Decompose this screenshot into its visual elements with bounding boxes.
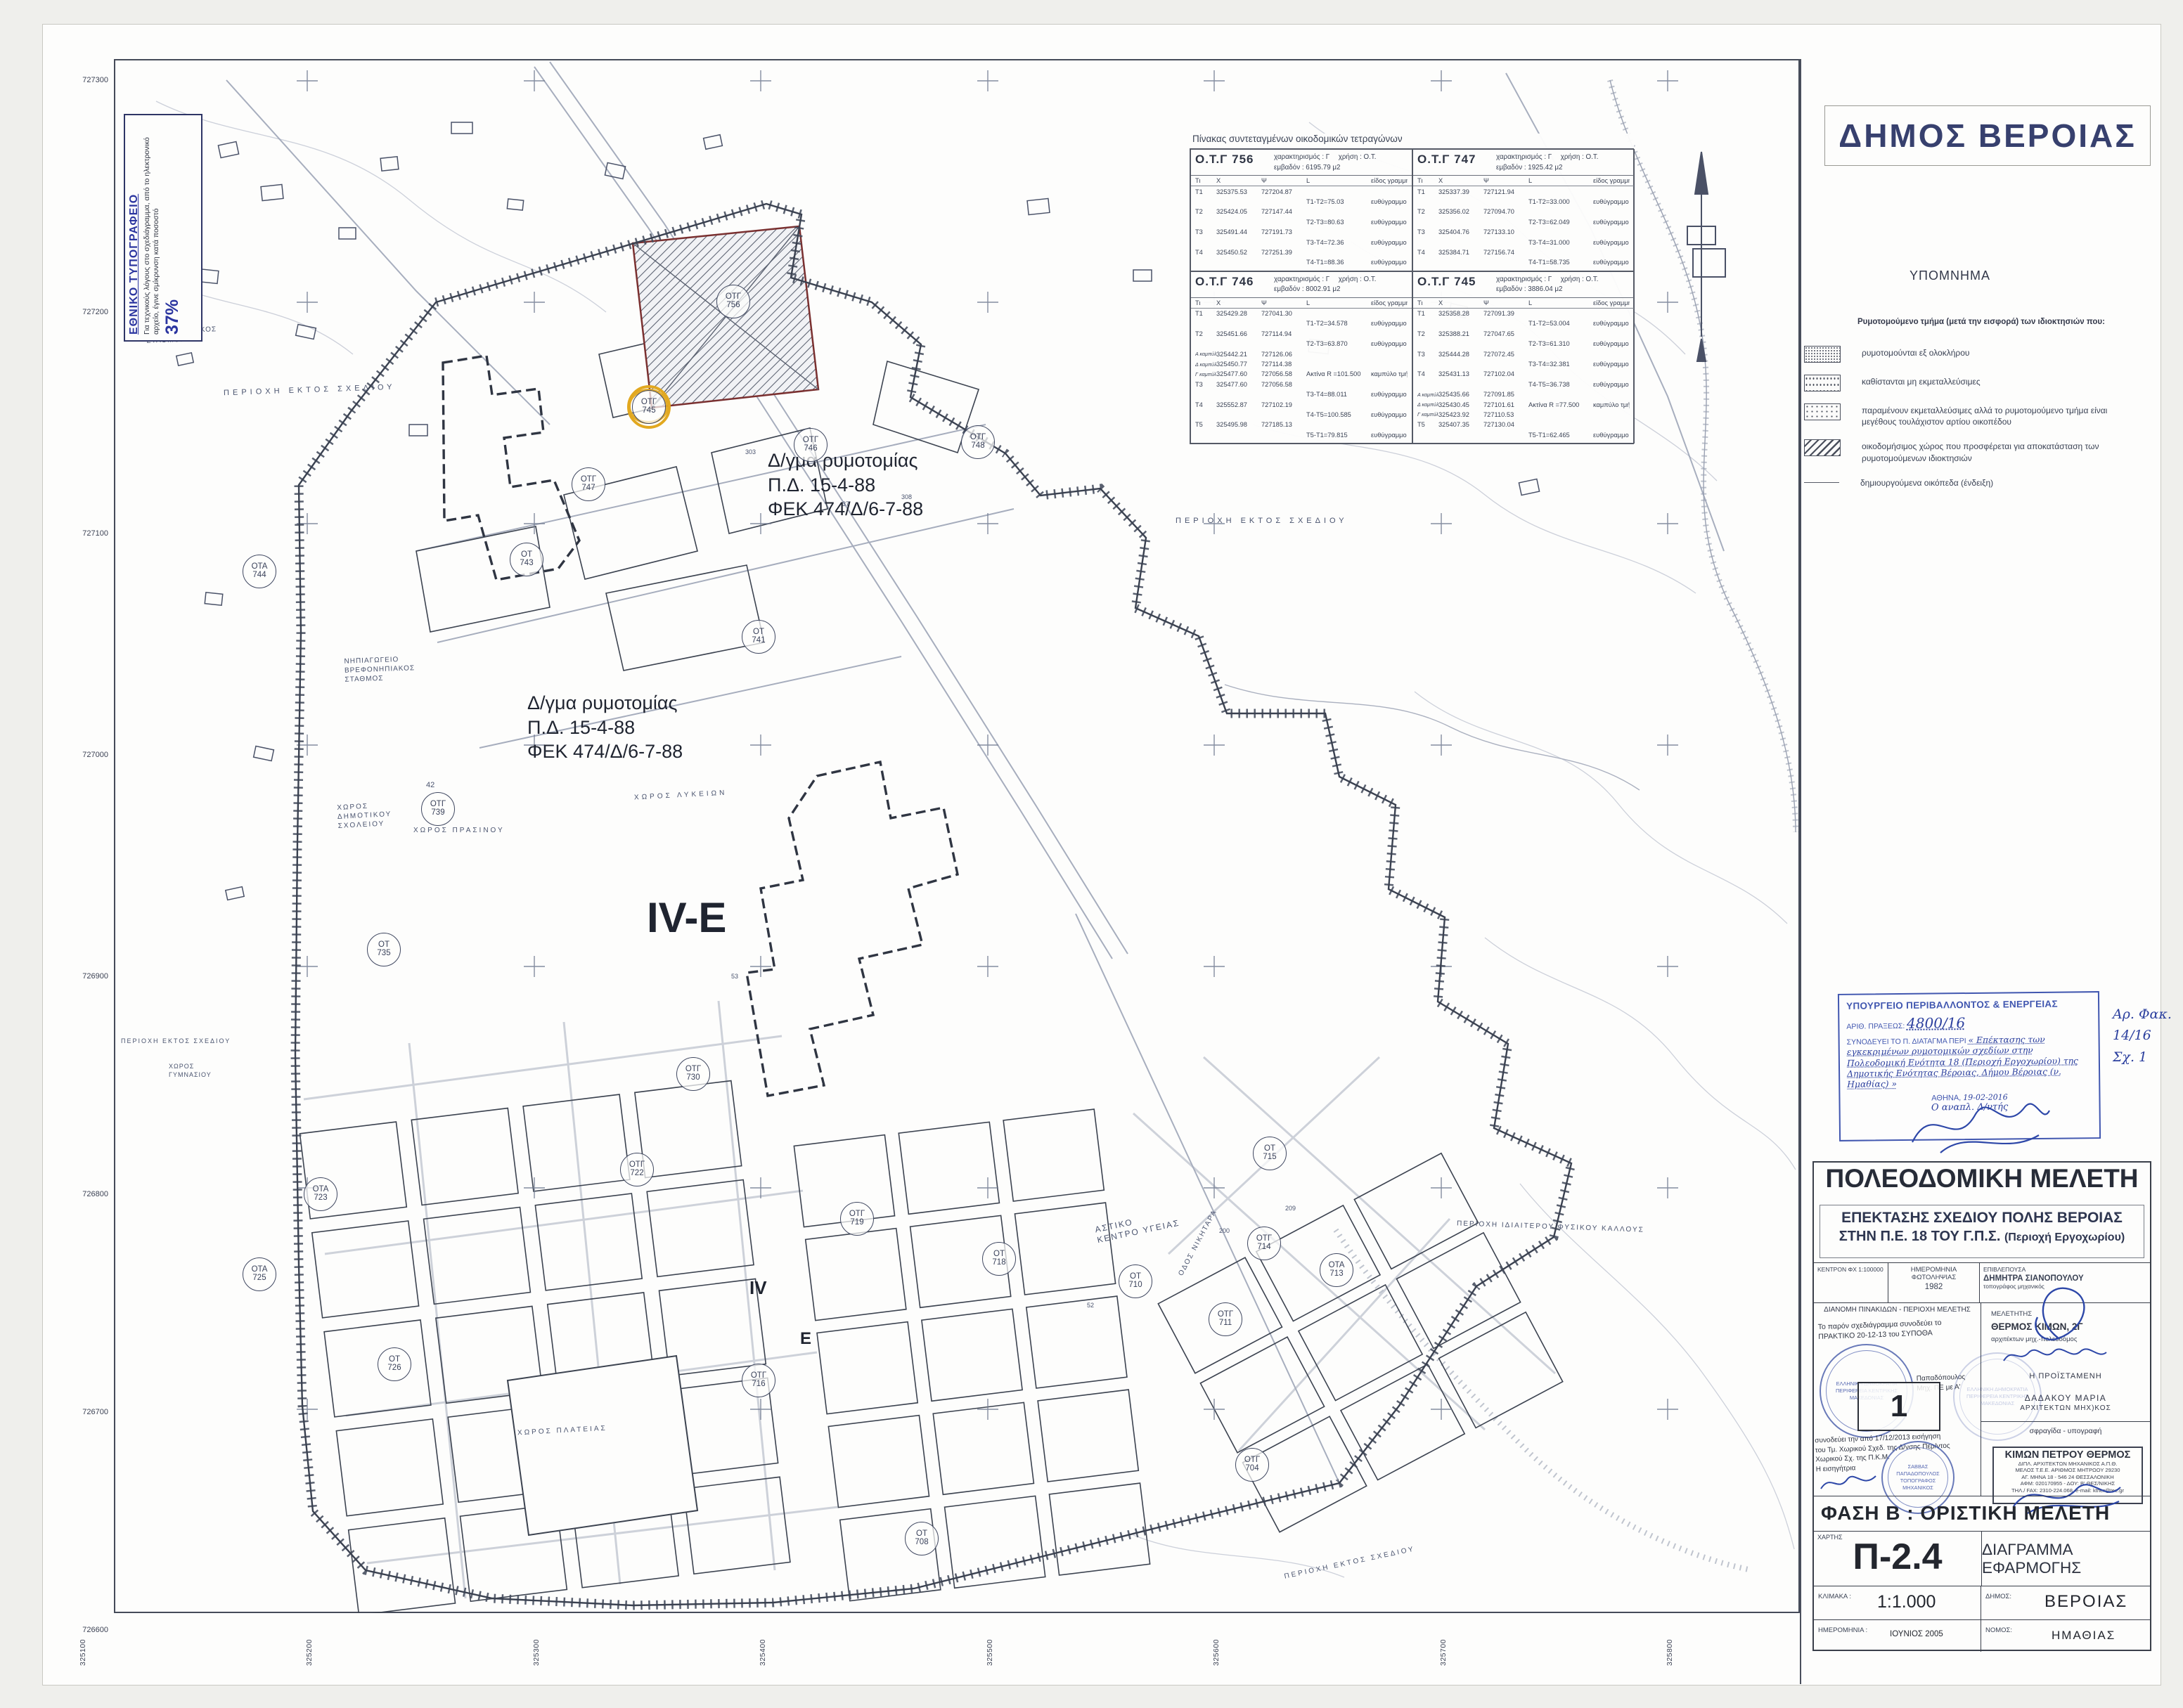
block-number: 710 bbox=[1128, 1281, 1142, 1290]
block-characterization: χαρακτηρισμός : Γ χρήση : Ο.Τ. bbox=[1496, 153, 1598, 163]
coordinate-row: Δ καμπύλης325430.45727101.61Ακτίνα R =77… bbox=[1413, 399, 1634, 409]
map-label-line: 53 bbox=[731, 973, 738, 981]
subtitle2-text: ΣΤΗΝ Π.Ε. 18 ΤΟΥ Γ.Π.Σ. bbox=[1839, 1229, 2001, 1244]
cell: T4-T1=58.735 bbox=[1528, 259, 1593, 266]
map-label-line: 308 bbox=[901, 493, 912, 502]
architect-stamp-line: ΚΙΜΩΝ ΠΕΤΡΟΥ ΘΕΡΜΟΣ bbox=[1994, 1449, 2142, 1461]
cell: ευθύγραμμο τμήμα bbox=[1593, 381, 1630, 388]
map-label: 37 bbox=[842, 500, 849, 509]
cell: 727147.44 bbox=[1261, 208, 1306, 215]
block-area: εμβαδόν : 3886.04 μ2 bbox=[1496, 285, 1598, 295]
cell: T5-T1=79.815 bbox=[1306, 432, 1371, 439]
map-label-line: Δ/γμα ρυμοτομίας bbox=[768, 448, 923, 473]
block-circle-715: ΟΤ715 bbox=[1253, 1137, 1287, 1170]
cell: T3-T4=32.381 bbox=[1528, 361, 1593, 368]
coordinate-row: T2325356.02727094.70 bbox=[1413, 207, 1634, 216]
cell: T3-T4=31.000 bbox=[1528, 239, 1593, 246]
block-number: 744 bbox=[252, 571, 266, 580]
scale-label: ΚΛΙΜΑΚΑ : bbox=[1818, 1593, 1851, 1600]
repro-percent: 37% bbox=[162, 121, 183, 335]
cell: T2 bbox=[1417, 330, 1438, 337]
legend-item-label: ρυμοτομούνται εξ ολοκλήρου bbox=[1862, 346, 1969, 358]
coordinate-row: T1-T2=33.000ευθύγραμμο τμήμα bbox=[1413, 197, 1634, 207]
cell: ευθύγραμμο τμήμα bbox=[1593, 320, 1630, 327]
block-characterization: χαρακτηρισμός : Γ χρήση : Ο.Τ. bbox=[1274, 153, 1376, 163]
praxis-row: ΑΡΙΘ. ΠΡΑΞΕΩΣ: 4800/16 bbox=[1846, 1013, 2091, 1033]
block-circle-723: ΟΤΑ723 bbox=[304, 1177, 337, 1211]
date-value: ΙΟΥΝΙΟΣ 2005 bbox=[1890, 1630, 1943, 1638]
cell: T3 bbox=[1417, 351, 1438, 358]
column-header: Ψ bbox=[1261, 299, 1306, 306]
cell: Γ καμπύλης bbox=[1195, 371, 1216, 377]
cell: T2 bbox=[1417, 208, 1438, 215]
photo-date-value: 1982 bbox=[1892, 1283, 1976, 1291]
cell: 727091.85 bbox=[1483, 391, 1528, 398]
cell: 727072.45 bbox=[1483, 351, 1528, 358]
cell: 325388.21 bbox=[1438, 330, 1483, 337]
column-header: L bbox=[1306, 299, 1371, 306]
cell: T2 bbox=[1195, 208, 1216, 215]
cell: 325435.66 bbox=[1438, 391, 1483, 398]
coordinate-row: T2-T3=62.049ευθύγραμμο τμήμα bbox=[1413, 217, 1634, 227]
block-circle-714: ΟΤΓ714 bbox=[1247, 1227, 1281, 1260]
cell: Ακτίνα R =101.500 bbox=[1306, 370, 1371, 377]
bottom-axis-label: 325600 bbox=[1212, 1628, 1221, 1666]
cell: T5 bbox=[1417, 421, 1438, 428]
file-ref-line1: Αρ. Φακ. 14/16 bbox=[2113, 1004, 2183, 1047]
left-axis-label: 726700 bbox=[67, 1408, 108, 1416]
nomos-value: ΗΜΑΘΙΑΣ bbox=[2052, 1629, 2116, 1643]
block-number: 730 bbox=[686, 1074, 700, 1082]
column-header: είδος γραμμής bbox=[1371, 299, 1408, 306]
block-number: 746 bbox=[804, 445, 817, 453]
block-circle-710: ΟΤ710 bbox=[1119, 1264, 1152, 1298]
cell: ευθύγραμμο τμήμα bbox=[1593, 219, 1630, 226]
cell: 325450.52 bbox=[1216, 249, 1261, 256]
bottom-axis-label: 325500 bbox=[986, 1628, 994, 1666]
subtitle2-note: (Περιοχή Εργοχωρίου) bbox=[2004, 1231, 2125, 1243]
cell: Α καμπύλης bbox=[1417, 392, 1438, 398]
map-code-row: ΧΑΡΤΗΣ Π-2.4 ΔΙΑΓΡΑΜΜΑ ΕΦΑΡΜΟΓΗΣ bbox=[1814, 1531, 2150, 1586]
bottom-axis-label: 325200 bbox=[305, 1628, 314, 1666]
column-headers: ΤιΧΨLείδος γραμμής bbox=[1191, 298, 1412, 309]
municipality-cell: ΔΗΜΟΣ: ΒΕΡΟΙΑΣ bbox=[1981, 1586, 2150, 1620]
cell: T1 bbox=[1417, 188, 1438, 195]
cell: 325404.76 bbox=[1438, 228, 1483, 235]
faint-stamp-text: ΕΛΛΗΝΙΚΗ ΔΗΜΟΚΡΑΤΙΑ ΠΕΡΙΦΕΡΕΙΑ ΚΕΝΤΡΙΚΗΣ… bbox=[1962, 1386, 2033, 1407]
info-row: ΚΕΝΤΡΟΝ ΦΧ 1:100000 ΗΜΕΡΟΜΗΝΙΑ ΦΩΤΟΛΗΨΙΑ… bbox=[1814, 1262, 2150, 1303]
coordinates-table: Πίνακας συντεταγμένων οικοδομικών τετραγ… bbox=[1190, 134, 1634, 444]
coord-block-header: Ο.Τ.Γ 745χαρακτηρισμός : Γ χρήση : Ο.Τ.ε… bbox=[1413, 272, 1634, 298]
coord-block: Ο.Τ.Γ 745χαρακτηρισμός : Γ χρήση : Ο.Τ.ε… bbox=[1412, 271, 1635, 444]
center-cell: ΚΕΝΤΡΟΝ ΦΧ 1:100000 bbox=[1814, 1263, 1888, 1302]
cell: 325430.45 bbox=[1438, 401, 1483, 408]
map-label: Δ/γμα ρυμοτομίαςΠ.Δ. 15-4-88ΦΕΚ 474/Δ/6-… bbox=[527, 691, 683, 764]
coordinate-row: T2325424.05727147.44 bbox=[1191, 207, 1412, 216]
map-label-line: ΦΕΚ 474/Δ/6-7-88 bbox=[527, 739, 683, 764]
reproduction-note-box: ΕΘΝΙΚΟ ΤΥΠΟΓΡΑΦΕΙΟ Για τεχνικούς λόγους … bbox=[124, 114, 202, 342]
cell: T3 bbox=[1195, 228, 1216, 235]
column-header: Ψ bbox=[1483, 177, 1528, 184]
map-label-line: 52 bbox=[1087, 1302, 1094, 1310]
cell: T1 bbox=[1417, 310, 1438, 317]
map-label: Ε bbox=[800, 1328, 811, 1350]
cell: T1-T2=33.000 bbox=[1528, 198, 1593, 205]
left-axis-label: 727000 bbox=[67, 751, 108, 759]
stamp-date: 19-02-2016 bbox=[1963, 1092, 2008, 1102]
coordinate-row: T4-T1=88.36ευθύγραμμο τμήμα bbox=[1191, 257, 1412, 267]
cell: 325451.66 bbox=[1216, 330, 1261, 337]
map-label: 53 bbox=[731, 973, 738, 981]
study-subtitle-2: ΣΤΗΝ Π.Ε. 18 ΤΟΥ Γ.Π.Σ. (Περιοχή Εργοχωρ… bbox=[1820, 1229, 2144, 1245]
block-area: εμβαδόν : 8002.91 μ2 bbox=[1274, 285, 1376, 295]
coord-block-header: Ο.Τ.Γ 747χαρακτηρισμός : Γ χρήση : Ο.Τ.ε… bbox=[1413, 150, 1634, 176]
map-label-line: ΓΥΜΝΑΣΙΟΥ bbox=[169, 1071, 212, 1080]
coordinate-row: T1-T2=75.03ευθύγραμμο τμήμα bbox=[1191, 197, 1412, 207]
map-label-line: Π.Δ. 15-4-88 bbox=[768, 473, 923, 498]
cell: 727110.53 bbox=[1483, 411, 1528, 418]
cell: Ακτίνα R =77.500 bbox=[1528, 401, 1593, 408]
supervisor-label: ΕΠΙΒΛΕΠΟΥΣΑ bbox=[1983, 1266, 2026, 1273]
architect-stamp-line: ΑΦΜ: 020170955 - ΔΟΥ: Β' ΘΕΣ/ΝΙΚΗΣ bbox=[1994, 1480, 2142, 1487]
praxis-label: ΑΡΙΘ. ΠΡΑΞΕΩΣ: bbox=[1846, 1022, 1905, 1031]
left-axis-label: 727300 bbox=[67, 76, 108, 84]
block-number: 756 bbox=[726, 302, 740, 310]
map-label-line: ΧΩΡΟΣ ΠΡΑΣΙΝΟΥ bbox=[413, 827, 505, 836]
block-id: Ο.Τ.Γ 747 bbox=[1417, 153, 1496, 167]
architect-stamp-line: ΑΓ. ΜΗΝΑ 18 - 546 24 ΘΕΣΣΑΛΟΝΙΚΗ bbox=[1994, 1474, 2142, 1480]
coordinate-row: T5-T1=62.465ευθύγραμμο τμήμα bbox=[1413, 430, 1634, 440]
legend-item: ρυμοτομούνται εξ ολοκλήρου bbox=[1804, 346, 2153, 363]
cell: ευθύγραμμο τμήμα bbox=[1371, 239, 1408, 246]
block-circle-704: ΟΤΓ704 bbox=[1235, 1448, 1269, 1482]
scale-row: ΚΛΙΜΑΚΑ : 1:1.000 ΔΗΜΟΣ: ΒΕΡΟΙΑΣ bbox=[1814, 1586, 2150, 1620]
cell: 727133.10 bbox=[1483, 228, 1528, 235]
coordinate-row: T2-T3=63.870ευθύγραμμο τμήμα bbox=[1191, 339, 1412, 349]
coordinate-row: T1325375.53727204.87 bbox=[1191, 186, 1412, 196]
cell: 727121.94 bbox=[1483, 188, 1528, 195]
column-header: Ψ bbox=[1483, 299, 1528, 306]
cell: T4-T5=36.738 bbox=[1528, 381, 1593, 388]
date-label: ΗΜΕΡΟΜΗΝΙΑ : bbox=[1818, 1626, 1867, 1634]
block-circle-756: ΟΤΓ756 bbox=[716, 285, 750, 318]
block-characterization: χαρακτηρισμός : Γ χρήση : Ο.Τ. bbox=[1496, 275, 1598, 285]
block-number: 723 bbox=[314, 1194, 327, 1203]
coordinate-row: T4325552.87727102.19 bbox=[1191, 399, 1412, 409]
column-header: Χ bbox=[1438, 299, 1483, 306]
cell: T5-T1=62.465 bbox=[1528, 432, 1593, 439]
cell: ευθύγραμμο τμήμα bbox=[1593, 340, 1630, 347]
bottom-axis-label: 325800 bbox=[1666, 1628, 1674, 1666]
map-title: ΔΙΑΓΡΑΜΜΑ ΕΦΑΡΜΟΓΗΣ bbox=[1982, 1532, 2150, 1586]
map-code: Π-2.4 bbox=[1814, 1536, 1981, 1578]
column-header: L bbox=[1306, 177, 1371, 184]
block-number: 745 bbox=[642, 407, 655, 415]
cell: T3 bbox=[1417, 228, 1438, 235]
cell: 727047.65 bbox=[1483, 330, 1528, 337]
study-subtitle-1: ΕΠΕΚΤΑΣΗΣ ΣΧΕΔΙΟΥ ΠΟΛΗΣ ΒΕΡΟΙΑΣ bbox=[1820, 1210, 2144, 1227]
hatch-swatch-icon bbox=[1804, 439, 1841, 456]
block-circle-716: ΟΤΓ716 bbox=[742, 1364, 775, 1397]
column-header: Τι bbox=[1417, 177, 1438, 184]
decree-row: ΣΥΝΟΔΕΥΕΙ ΤΟ Π. ΔΙΑΤΑΓΜΑ ΠΕΡΙ « Επέκταση… bbox=[1847, 1034, 2092, 1090]
cell: 727251.39 bbox=[1261, 249, 1306, 256]
cell: 325552.87 bbox=[1216, 401, 1261, 408]
date-cell: ΗΜΕΡΟΜΗΝΙΑ : ΙΟΥΝΙΟΣ 2005 bbox=[1814, 1620, 1981, 1652]
block-circle-718: ΟΤ718 bbox=[982, 1242, 1016, 1276]
architect-stamp-line: ΜΕΛΟΣ Τ.Ε.Ε. ΑΡΙΘΜΟΣ ΜΗΤΡΩΟΥ 29230 bbox=[1994, 1467, 2142, 1473]
map-label: IV-E bbox=[647, 891, 726, 945]
coordinate-row: T2325451.66727114.94 bbox=[1191, 329, 1412, 339]
decree-label: ΣΥΝΟΔΕΥΕΙ ΤΟ Π. ΔΙΑΤΑΓΜΑ ΠΕΡΙ bbox=[1847, 1037, 1966, 1047]
map-label-line: 37 bbox=[842, 500, 849, 509]
plaza-block bbox=[508, 1356, 697, 1535]
legend-item-label: οικοδομήσιμος χώρος που προσφέρεται για … bbox=[1862, 439, 2136, 463]
coordinate-row: T3-T4=32.381ευθύγραμμο τμήμα bbox=[1413, 359, 1634, 369]
phase-label: ΦΑΣΗ Β : ΟΡΙΣΤΙΚΗ ΜΕΛΕΤΗ bbox=[1814, 1496, 2150, 1531]
consultant-label: ΜΕΛΕΤΗΤΗΣ bbox=[1991, 1310, 2032, 1318]
left-axis-label: 727100 bbox=[67, 529, 108, 538]
cell: 325495.98 bbox=[1216, 421, 1261, 428]
coordinate-row: T4325431.13727102.04 bbox=[1413, 369, 1634, 379]
coordinate-row: T2-T3=61.310ευθύγραμμο τμήμα bbox=[1413, 339, 1634, 349]
cell: T2-T3=62.049 bbox=[1528, 219, 1593, 226]
panel-divider bbox=[1800, 59, 1801, 1684]
dimos-label: ΔΗΜΟΣ: bbox=[1985, 1593, 2011, 1600]
coordinates-table-title: Πίνακας συντεταγμένων οικοδομικών τετραγ… bbox=[1192, 134, 1634, 144]
cell: 727102.04 bbox=[1483, 370, 1528, 377]
cell: 325423.92 bbox=[1438, 411, 1483, 418]
block-meta: χαρακτηρισμός : Γ χρήση : Ο.Τ.εμβαδόν : … bbox=[1496, 275, 1598, 295]
coordinate-row: T1325337.39727121.94 bbox=[1413, 186, 1634, 196]
map-label-line: 209 bbox=[1285, 1205, 1296, 1213]
block-circle-747: ΟΤΓ747 bbox=[572, 467, 605, 501]
coordinate-row: Α καμπύλης325442.21727126.06 bbox=[1191, 349, 1412, 358]
cell: T5 bbox=[1195, 421, 1216, 428]
cell: 325431.13 bbox=[1438, 370, 1483, 377]
cell: 727056.58 bbox=[1261, 381, 1306, 388]
coordinate-row: T3325444.28727072.45 bbox=[1413, 349, 1634, 358]
cell: 325407.35 bbox=[1438, 421, 1483, 428]
cell: ευθύγραμμο τμήμα bbox=[1371, 259, 1408, 266]
cell: 325442.21 bbox=[1216, 351, 1261, 358]
coordinate-row: T4-T5=100.585ευθύγραμμο τμήμα bbox=[1191, 410, 1412, 420]
cell: 325337.39 bbox=[1438, 188, 1483, 195]
map-label: ΧΩΡΟΣΔΗΜΟΤΙΚΟΥΣΧΟΛΕΙΟΥ bbox=[337, 801, 392, 831]
cell: 325384.71 bbox=[1438, 249, 1483, 256]
map-label-line: IV bbox=[749, 1276, 767, 1300]
map-label-line: Ε bbox=[800, 1328, 811, 1350]
coordinate-row: T1-T2=53.004ευθύγραμμο τμήμα bbox=[1413, 318, 1634, 328]
cell: T2-T3=61.310 bbox=[1528, 340, 1593, 347]
coord-block: Ο.Τ.Γ 747χαρακτηρισμός : Γ χρήση : Ο.Τ.ε… bbox=[1412, 149, 1635, 271]
faint-round-stamp: ΕΛΛΗΝΙΚΗ ΔΗΜΟΚΡΑΤΙΑ ΠΕΡΙΦΕΡΕΙΑ ΚΕΝΤΡΙΚΗΣ… bbox=[1953, 1352, 2042, 1441]
map-label-line: ΧΩΡΟΣ bbox=[169, 1063, 212, 1071]
consultant-name: ΘΕΡΜΟΣ ΚΙΜΩΝ, 2Γ bbox=[1991, 1321, 2083, 1332]
block-number: 704 bbox=[1245, 1465, 1258, 1473]
block-number: 741 bbox=[752, 637, 765, 645]
cell: Γ καμπύλης bbox=[1417, 411, 1438, 418]
legend-item: παραμένουν εκμεταλλεύσιμες αλλά το ρυμοτ… bbox=[1804, 403, 2153, 427]
coord-block-header: Ο.Τ.Γ 756χαρακτηρισμός : Γ χρήση : Ο.Τ.ε… bbox=[1191, 150, 1412, 176]
block-meta: χαρακτηρισμός : Γ χρήση : Ο.Τ.εμβαδόν : … bbox=[1496, 153, 1598, 173]
map-label-line: 42 bbox=[426, 780, 434, 790]
architect-stamp-line: ΤΗΛ./ FAX: 2310-224.068, e-mail: kther@t… bbox=[1994, 1487, 2142, 1494]
cell: 325477.60 bbox=[1216, 370, 1261, 377]
map-label: 303 bbox=[745, 448, 756, 457]
cell: ευθύγραμμο τμήμα bbox=[1593, 259, 1630, 266]
coordinate-row: T5325407.35727130.04 bbox=[1413, 420, 1634, 429]
coordinate-row: T4-T5=36.738ευθύγραμμο τμήμα bbox=[1413, 380, 1634, 389]
map-label: 308 bbox=[901, 493, 912, 502]
cell: T4 bbox=[1195, 249, 1216, 256]
column-header: L bbox=[1528, 299, 1593, 306]
column-header: είδος γραμμής bbox=[1371, 177, 1408, 184]
cell: καμπύλο τμήμα bbox=[1371, 370, 1408, 377]
cell: ευθύγραμμο τμήμα bbox=[1371, 219, 1408, 226]
column-header: Χ bbox=[1216, 177, 1261, 184]
block-number: 748 bbox=[971, 442, 984, 451]
cell: 325424.05 bbox=[1216, 208, 1261, 215]
architect-stamp-line: ΔΙΠΛ. ΑΡΧΙΤΕΚΤΩΝ ΜΗΧΑΝΙΚΟΣ Α.Π.Θ. bbox=[1994, 1461, 2142, 1467]
coordinate-row: T3-T4=72.36ευθύγραμμο τμήμα bbox=[1191, 237, 1412, 247]
cell: 727204.87 bbox=[1261, 188, 1306, 195]
cell: 325444.28 bbox=[1438, 351, 1483, 358]
legend-title: ΥΠΟΜΝΗΜΑ bbox=[1910, 269, 1990, 283]
coordinate-row: T1325429.28727041.30 bbox=[1191, 309, 1412, 318]
cell: 727114.38 bbox=[1261, 361, 1306, 368]
block-number: 716 bbox=[752, 1380, 765, 1389]
block-characterization: χαρακτηρισμός : Γ χρήση : Ο.Τ. bbox=[1274, 275, 1376, 285]
cell: ευθύγραμμο τμήμα bbox=[1593, 198, 1630, 205]
map-label: 200 bbox=[1219, 1227, 1230, 1236]
signer-role: Ο αναπλ. Δ/ντής bbox=[1848, 1101, 2092, 1114]
bottom-axis-label: 325700 bbox=[1439, 1628, 1448, 1666]
title-block: ΠΟΛΕΟΔΟΜΙΚΗ ΜΕΛΕΤΗ ΕΠΕΚΤΑΣΗΣ ΣΧΕΔΙΟΥ ΠΟΛ… bbox=[1812, 1161, 2151, 1651]
map-label: ΠΕΡΙΟΧΗ ΕΚΤΟΣ ΣΧΕΔΙΟΥ bbox=[121, 1037, 231, 1046]
prefecture-cell: ΝΟΜΟΣ: ΗΜΑΘΙΑΣ bbox=[1981, 1620, 2150, 1652]
coordinate-row: T3-T4=31.000ευθύγραμμο τμήμα bbox=[1413, 237, 1634, 247]
cell: T1-T2=34.578 bbox=[1306, 320, 1371, 327]
block-number: 713 bbox=[1329, 1270, 1343, 1279]
block-circle-746: ΟΤΓ746 bbox=[794, 428, 828, 462]
map-label: IV bbox=[749, 1276, 767, 1300]
cell: 325375.53 bbox=[1216, 188, 1261, 195]
coordinate-row: Α καμπύλης325435.66727091.85 bbox=[1413, 389, 1634, 399]
legend: ρυμοτομούνται εξ ολοκλήρουκαθίστανται μη… bbox=[1804, 346, 2153, 500]
municipality-name: ΔΗΜΟΣ ΒΕΡΟΙΑΣ bbox=[1839, 117, 2137, 155]
cell: 727114.94 bbox=[1261, 330, 1306, 337]
cell: 727102.19 bbox=[1261, 401, 1306, 408]
block-meta: χαρακτηρισμός : Γ χρήση : Ο.Τ.εμβαδόν : … bbox=[1274, 153, 1376, 173]
block-circle-744: ΟΤΑ744 bbox=[243, 555, 276, 588]
repro-text: Για τεχνικούς λόγους στο σχεδιάγραμμα, α… bbox=[143, 131, 161, 335]
block-circle-719: ΟΤΓ719 bbox=[840, 1202, 874, 1236]
consultant-role: αρχιτέκτων μηχ.-πολεοδόμος bbox=[1991, 1335, 2077, 1343]
cell: ευθύγραμμο τμήμα bbox=[1371, 320, 1408, 327]
left-axis-label: 726600 bbox=[67, 1626, 108, 1634]
map-label-line: 303 bbox=[745, 448, 756, 457]
coordinate-row: T3325491.44727191.73 bbox=[1191, 227, 1412, 237]
cell: T3-T4=88.011 bbox=[1306, 391, 1371, 398]
block-number: 747 bbox=[581, 484, 595, 493]
cell: ευθύγραμμο τμήμα bbox=[1371, 391, 1408, 398]
cell: ευθύγραμμο τμήμα bbox=[1593, 361, 1630, 368]
coord-block: Ο.Τ.Γ 756χαρακτηρισμός : Γ χρήση : Ο.Τ.ε… bbox=[1190, 149, 1412, 271]
cell: 727041.30 bbox=[1261, 310, 1306, 317]
cell: T4-T1=88.36 bbox=[1306, 259, 1371, 266]
map-label: 52 bbox=[1087, 1302, 1094, 1310]
cell: ευθύγραμμο τμήμα bbox=[1593, 432, 1630, 439]
cell: 727185.13 bbox=[1261, 421, 1306, 428]
dimos-value: ΒΕΡΟΙΑΣ bbox=[2044, 1592, 2127, 1612]
cell: T3-T4=72.36 bbox=[1306, 239, 1371, 246]
block-number: 739 bbox=[431, 809, 444, 817]
file-ref-line2: Σχ. 1 bbox=[2113, 1047, 2183, 1068]
block-circle-726: ΟΤ726 bbox=[378, 1347, 411, 1381]
cell: Δ καμπύλης bbox=[1417, 401, 1438, 408]
block-circle-741: ΟΤ741 bbox=[742, 620, 775, 654]
cell: 727191.73 bbox=[1261, 228, 1306, 235]
map-label: Δ/γμα ρυμοτομίαςΠ.Δ. 15-4-88ΦΕΚ 474/Δ/6-… bbox=[768, 448, 923, 522]
praxis-number: 4800/16 bbox=[1907, 1014, 1965, 1032]
file-reference-note: Αρ. Φακ. 14/16 Σχ. 1 bbox=[2113, 1004, 2183, 1068]
cell: T1 bbox=[1195, 188, 1216, 195]
cell: 325450.77 bbox=[1216, 361, 1261, 368]
cell: T4 bbox=[1417, 249, 1438, 256]
legend-item-label: δημιουργούμενα οικόπεδα (ένδειξη) bbox=[1860, 476, 1993, 489]
supervisor-name: ΔΗΜΗΤΡΑ ΣΙΑΝΟΠΟΥΛΟΥ bbox=[1983, 1274, 2146, 1283]
cell: ευθύγραμμο τμήμα bbox=[1371, 432, 1408, 439]
photo-date-label: ΗΜΕΡΟΜΗΝΙΑ ΦΩΤΟΛΗΨΙΑΣ bbox=[1911, 1266, 1957, 1281]
bottom-axis-label: 325100 bbox=[79, 1628, 87, 1666]
block-circle-725: ΟΤΑ725 bbox=[243, 1257, 276, 1291]
map-label-line: ΠΕΡΙΟΧΗ ΕΚΤΟΣ ΣΧΕΔΙΟΥ bbox=[121, 1037, 231, 1046]
column-header: Τι bbox=[1195, 177, 1216, 184]
block-number: 718 bbox=[992, 1259, 1005, 1267]
coordinate-row: T3-T4=88.011ευθύγραμμο τμήμα bbox=[1191, 389, 1412, 399]
stamp-city: ΑΘΗΝΑ, bbox=[1931, 1094, 1961, 1102]
block-circle-739: ΟΤΓ739 bbox=[421, 792, 455, 826]
cell: 325429.28 bbox=[1216, 310, 1261, 317]
legend-item-label: παραμένουν εκμεταλλεύσιμες αλλά το ρυμοτ… bbox=[1862, 403, 2136, 427]
block-circle-708: ΟΤ708 bbox=[905, 1522, 939, 1555]
coordinate-row: Δ καμπύλης325450.77727114.38 bbox=[1191, 359, 1412, 369]
column-header: Ψ bbox=[1261, 177, 1306, 184]
date-row: ΗΜΕΡΟΜΗΝΙΑ : ΙΟΥΝΙΟΣ 2005 ΝΟΜΟΣ: ΗΜΑΘΙΑΣ bbox=[1814, 1619, 2150, 1652]
map-code-cell: ΧΑΡΤΗΣ Π-2.4 bbox=[1814, 1532, 1982, 1586]
block-meta: χαρακτηρισμός : Γ χρήση : Ο.Τ.εμβαδόν : … bbox=[1274, 275, 1376, 295]
nomos-label: ΝΟΜΟΣ: bbox=[1985, 1626, 2012, 1634]
block-circle-745: ΟΤΓ745 bbox=[632, 390, 666, 424]
left-axis-label: 726900 bbox=[67, 972, 108, 981]
column-headers: ΤιΧΨLείδος γραμμής bbox=[1413, 298, 1634, 309]
block-number: 714 bbox=[1257, 1243, 1270, 1252]
hatched-block-756 bbox=[633, 226, 818, 408]
coordinate-row: T2325388.21727047.65 bbox=[1413, 329, 1634, 339]
coord-block: Ο.Τ.Γ 746χαρακτηρισμός : Γ χρήση : Ο.Τ.ε… bbox=[1190, 271, 1412, 444]
column-header: Τι bbox=[1195, 299, 1216, 306]
block-circle-713: ΟΤΑ713 bbox=[1320, 1253, 1353, 1287]
left-axis-label: 726800 bbox=[67, 1190, 108, 1198]
map-label-line: 200 bbox=[1219, 1227, 1230, 1236]
cell: 325358.28 bbox=[1438, 310, 1483, 317]
block-circle-722: ΟΤΓ722 bbox=[620, 1153, 654, 1186]
distribution-label: ΔΙΑΝΟΜΗ ΠΙΝΑΚΙΔΩΝ - ΠΕΡΙΟΧΗ ΜΕΛΕΤΗΣ bbox=[1814, 1306, 1981, 1314]
cell: T2-T3=63.870 bbox=[1306, 340, 1371, 347]
map-label-line: Π.Δ. 15-4-88 bbox=[527, 716, 683, 740]
cell: ευθύγραμμο τμήμα bbox=[1371, 411, 1408, 418]
